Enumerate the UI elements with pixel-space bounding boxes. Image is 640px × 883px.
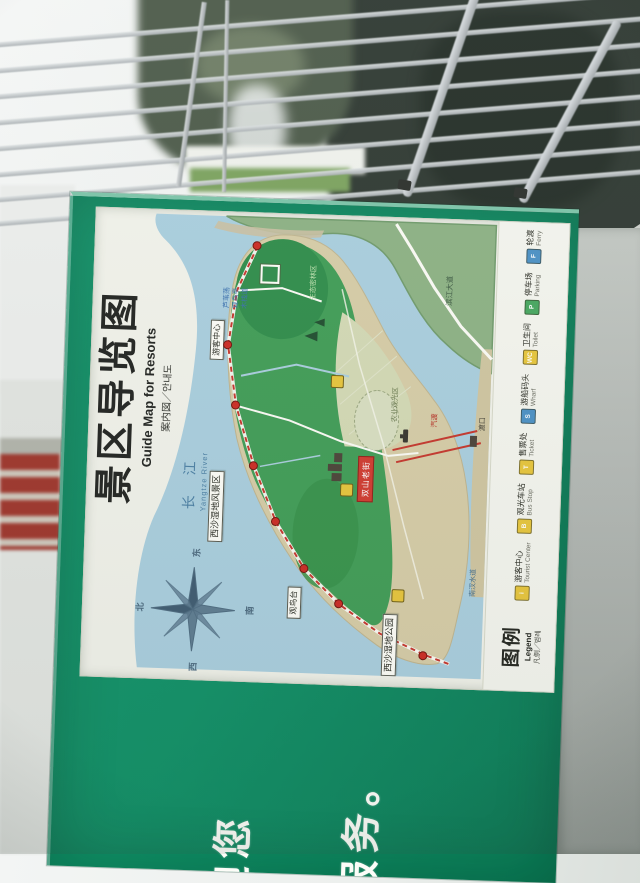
poi-icon-yellow — [331, 375, 344, 388]
compass-star — [141, 557, 244, 660]
poi-reed-marsh: 芦苇荡 — [223, 287, 232, 308]
slogan-line-1: 热忱欢迎您 — [194, 811, 260, 883]
compass-east-label: 东 — [190, 548, 203, 557]
ferry-icon: F — [526, 248, 542, 264]
dock-icon — [470, 436, 477, 447]
toilet-icon: WC — [522, 350, 538, 366]
legend-label-en: Tourist Center — [524, 542, 532, 583]
legend-label: 轮渡 — [525, 229, 537, 245]
wharf-icon: S — [520, 409, 536, 425]
parking-icon: P — [524, 299, 540, 315]
red-structure-roof — [0, 438, 64, 454]
legend-title-zh: 图例 — [495, 606, 525, 687]
legend-title: 图例 Legend 凡例／범례 — [495, 606, 544, 688]
map-title-block: 景区导览图 Guide Map for Resorts 案内図／안내도 — [94, 279, 177, 515]
poi-list: 芦苇荡 观鸟亭 木栈道 — [223, 287, 250, 309]
signboard-content: 热忱欢迎您 竭诚为您服务。 — [50, 196, 579, 883]
pagoda-icon — [304, 331, 317, 341]
legend-label-en: Toilet — [532, 323, 540, 347]
bird-tower-label: 观鸟台 — [287, 586, 302, 618]
building-icon — [334, 453, 342, 462]
wetland-park-label: 西沙湿地公园 — [381, 614, 398, 676]
legend-label-en: Bus Stop — [526, 484, 534, 516]
ticket-office-icon: T — [518, 459, 534, 475]
guide-map-signboard: 热忱欢迎您 竭诚为您服务。 — [47, 192, 579, 883]
red-structure-bands — [0, 454, 60, 550]
park-icon — [260, 264, 280, 284]
legend-item-ferry: F 轮渡 Ferry — [524, 227, 543, 264]
old-street-banner: 双山老街 — [357, 456, 375, 503]
legend-item-wharf: S 游船码头 Wharf — [519, 371, 539, 424]
ferry-boat-icon — [403, 429, 408, 442]
building-icon — [328, 464, 342, 471]
railing-clamp — [397, 179, 412, 191]
poi-bird-pavilion: 观鸟亭 — [232, 287, 241, 308]
red-lattice-structure — [0, 438, 64, 550]
legend-label: 售票处 — [517, 432, 529, 456]
scenic-area-label: 西沙湿地风景区 — [207, 471, 224, 542]
legend-label-en: Wharf — [530, 374, 538, 406]
channel-label: 南汊水道 — [467, 569, 478, 597]
visitor-center-label: 游客中心 — [210, 320, 225, 360]
compass-rose: 北 南 西 东 — [141, 557, 244, 660]
fields-label: 农业观光区 — [390, 387, 401, 422]
legend-label-en: Ferry — [536, 230, 544, 246]
legend-label-en: Ticket — [528, 433, 536, 457]
tree-icon — [314, 318, 325, 326]
compass-west-label: 西 — [186, 662, 199, 671]
poi-boardwalk: 木栈道 — [241, 288, 250, 309]
river-name-label: 长 江 Yangtze River — [178, 451, 209, 512]
legend-item-tourist-center: i 游客中心 Tourist Center — [512, 539, 532, 601]
legend-item-bus-stop: B 观光车站 Bus Stop — [515, 480, 535, 533]
map-title-zh: 景区导览图 — [94, 279, 143, 514]
bus-stop-icon: B — [516, 518, 532, 534]
poi-icon-yellow — [340, 483, 353, 496]
legend-label-en: Parking — [534, 272, 542, 296]
map-panel: 景区导览图 Guide Map for Resorts 案内図／안내도 — [79, 207, 570, 693]
legend-label: 停车场 — [523, 272, 535, 296]
river-name-zh: 长 江 — [178, 451, 200, 511]
slogan-line-2: 竭诚为您服务。 — [320, 758, 389, 883]
poi-icon-yellow — [391, 589, 404, 602]
legend: 图例 Legend 凡例／범례 i 游客中心 Tourist Center B … — [482, 222, 569, 692]
tourist-center-icon: i — [514, 585, 530, 601]
ferry-label: 汽渡 — [429, 413, 439, 427]
road-label: 滨江大道 — [444, 276, 456, 306]
forest-label: 生态密林区 — [308, 265, 319, 300]
dock-label: 渡口 — [477, 417, 487, 431]
legend-item-parking: P 停车场 Parking — [522, 269, 542, 314]
legend-item-ticket: T 售票处 Ticket — [517, 430, 537, 475]
legend-title-jk: 凡例／범례 — [531, 607, 544, 687]
building-icon — [331, 473, 341, 481]
compass-north-label: 北 — [133, 602, 146, 611]
compass-south-label: 南 — [243, 606, 256, 615]
legend-item-toilet: WC 卫生间 Toilet — [521, 320, 541, 365]
railing-clamp — [513, 187, 528, 199]
legend-label: 卫生间 — [521, 323, 533, 347]
